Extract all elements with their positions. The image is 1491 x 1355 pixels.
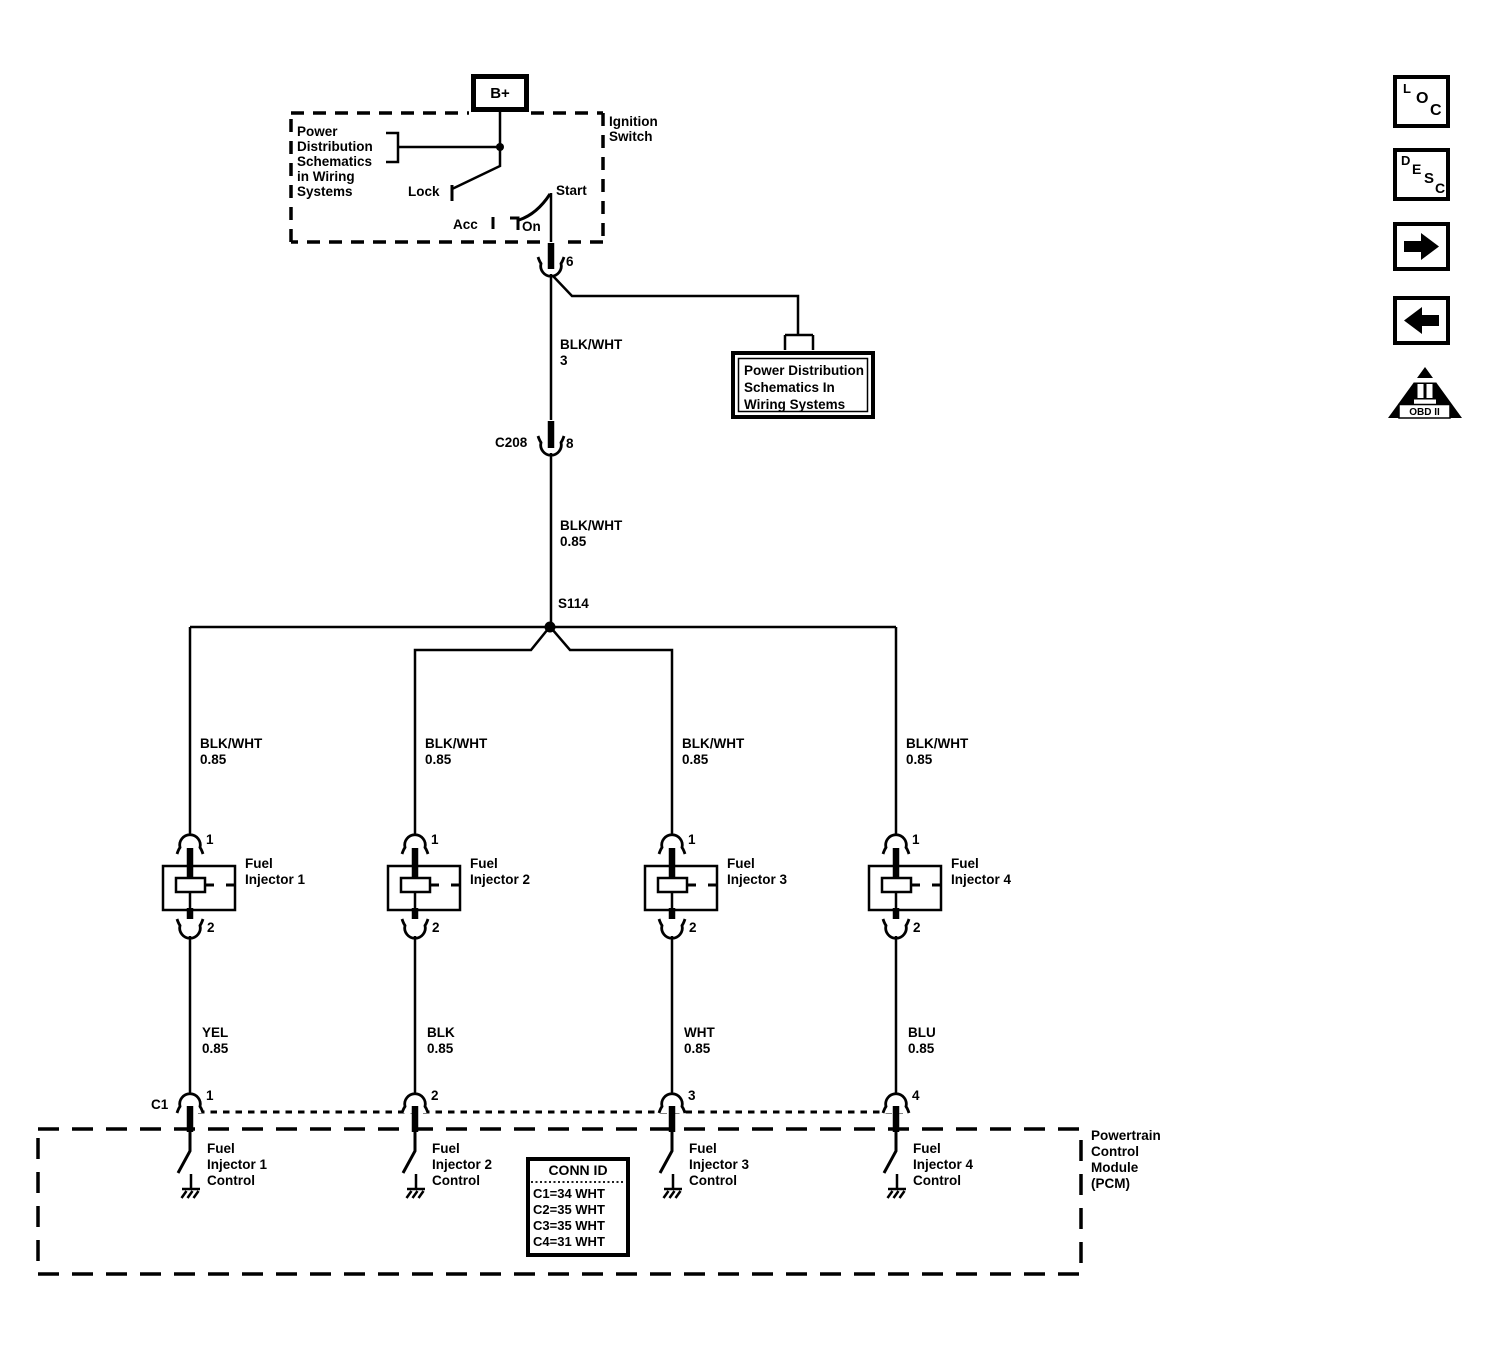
s114-label: S114 [558, 596, 589, 612]
b1-ctl3: Control [207, 1173, 267, 1189]
b2-wire-label: BLK 0.85 [427, 1025, 455, 1057]
conn-row-1: C1=34 WHT [533, 1186, 605, 1202]
battery-feed-box: B+ [471, 74, 529, 112]
b4-feed-color: BLK/WHT [906, 736, 968, 752]
b2-control-label: Fuel Injector 2 Control [432, 1141, 492, 1189]
ignition-pin6-connector [538, 243, 564, 276]
b1-feed-size: 0.85 [200, 752, 262, 768]
right-arrow-icon [1397, 226, 1446, 267]
note-line3: Schematics [297, 154, 373, 169]
note-line5: Systems [297, 184, 373, 199]
ignition-title-line1: Ignition [609, 114, 658, 129]
pcm-line1: Powertrain [1091, 1128, 1161, 1144]
obd2-warning-triangle-icon: OBD II [1383, 363, 1467, 423]
c208-label: C208 [495, 435, 527, 451]
next-page-button[interactable] [1393, 222, 1450, 271]
conn-id-rows: C1=34 WHT C2=35 WHT C3=35 WHT C4=31 WHT [533, 1186, 605, 1250]
b3-ctl1: Fuel [689, 1141, 749, 1157]
desc-letter-e: E [1412, 161, 1421, 177]
b1-pin2: 2 [207, 920, 215, 936]
pcm-title: Powertrain Control Module (PCM) [1091, 1128, 1161, 1192]
note-line2: Distribution [297, 139, 373, 154]
diagram-root: B+ Ignition Switch Power Distribution Sc… [0, 0, 1491, 1355]
b2-pcm-pin: 2 [431, 1088, 439, 1104]
b2-ctl3: Control [432, 1173, 492, 1189]
branch1-feed-label: BLK/WHT 0.85 [200, 736, 262, 768]
note-line4: in Wiring [297, 169, 373, 184]
b3-dev2: Injector 3 [727, 872, 787, 888]
wire2-color: BLK/WHT [560, 518, 622, 534]
b2-pin2: 2 [432, 920, 440, 936]
c208-pin-label: 8 [566, 436, 574, 452]
b4-feed-size: 0.85 [906, 752, 968, 768]
b2-feed-color: BLK/WHT [425, 736, 487, 752]
b2-feed-size: 0.85 [425, 752, 487, 768]
desc-letter-s: S [1424, 170, 1434, 187]
b2-dev1: Fuel [470, 856, 530, 872]
switch-pos-on: On [522, 219, 541, 235]
power-distribution-box-label: Power Distribution Schematics In Wiring … [744, 362, 864, 413]
pd-box-line2: Schematics In [744, 379, 864, 396]
pcm-line3: Module [1091, 1160, 1161, 1176]
obd2-button[interactable]: OBD II [1383, 363, 1467, 428]
s114-splice [190, 622, 896, 837]
b4-ctl1: Fuel [913, 1141, 973, 1157]
b4-ctl2: Injector 4 [913, 1157, 973, 1173]
b4-pcm-pin: 4 [912, 1088, 920, 1104]
b1-feed-color: BLK/WHT [200, 736, 262, 752]
b3-control-label: Fuel Injector 3 Control [689, 1141, 749, 1189]
b3-pin2: 2 [689, 920, 697, 936]
b2-ctl2: Injector 2 [432, 1157, 492, 1173]
b1-dev2: Injector 1 [245, 872, 305, 888]
pd-box-line3: Wiring Systems [744, 396, 864, 413]
wire-label-blkwht-3: BLK/WHT 3 [560, 337, 622, 369]
pin6-label: 6 [566, 254, 574, 270]
b1-wire-size: 0.85 [202, 1041, 228, 1057]
loc-letter-c: C [1430, 102, 1442, 120]
b4-wire-size: 0.85 [908, 1041, 936, 1057]
desc-button[interactable]: D E S C [1393, 148, 1450, 201]
wire2-size: 0.85 [560, 534, 622, 550]
b4-control-label: Fuel Injector 4 Control [913, 1141, 973, 1189]
b4-dev1: Fuel [951, 856, 1011, 872]
pcm-line4: (PCM) [1091, 1176, 1161, 1192]
b1-dev1: Fuel [245, 856, 305, 872]
loc-button[interactable]: L O C [1393, 75, 1450, 128]
b3-ctl3: Control [689, 1173, 749, 1189]
pd-box-line1: Power Distribution [744, 362, 864, 379]
switch-pos-start: Start [556, 183, 587, 199]
wire-label-blkwht-085: BLK/WHT 0.85 [560, 518, 622, 550]
ignition-title-line2: Switch [609, 129, 658, 144]
desc-letter-d: D [1401, 153, 1410, 168]
b1-ctl2: Injector 1 [207, 1157, 267, 1173]
wire1-color: BLK/WHT [560, 337, 622, 353]
power-distribution-note: Power Distribution Schematics in Wiring … [297, 124, 373, 199]
conn-row-4: C4=31 WHT [533, 1234, 605, 1250]
b3-wire-label: WHT 0.85 [684, 1025, 715, 1057]
b4-wire-label: BLU 0.85 [908, 1025, 936, 1057]
switch-pos-acc: Acc [453, 217, 478, 233]
loc-letter-o: O [1416, 90, 1428, 108]
wire1-size: 3 [560, 353, 622, 369]
b1-pin1: 1 [206, 832, 214, 848]
b2-ctl1: Fuel [432, 1141, 492, 1157]
b4-ctl3: Control [913, 1173, 973, 1189]
b3-ctl2: Injector 3 [689, 1157, 749, 1173]
c1-label: C1 [151, 1097, 168, 1113]
obd2-label: OBD II [1409, 407, 1440, 418]
b3-dev1: Fuel [727, 856, 787, 872]
pcm-line2: Control [1091, 1144, 1161, 1160]
left-arrow-icon [1397, 300, 1446, 341]
b4-pin2: 2 [913, 920, 921, 936]
b1-control-label: Fuel Injector 1 Control [207, 1141, 267, 1189]
b1-wire-label: YEL 0.85 [202, 1025, 228, 1057]
branch4-feed-label: BLK/WHT 0.85 [906, 736, 968, 768]
b1-wire-color: YEL [202, 1025, 228, 1041]
note-line1: Power [297, 124, 373, 139]
b2-dev2: Injector 2 [470, 872, 530, 888]
b3-pcm-pin: 3 [688, 1088, 696, 1104]
b1-pcm-pin: 1 [206, 1088, 214, 1104]
switch-pos-lock: Lock [408, 184, 440, 200]
b2-pin1: 1 [431, 832, 439, 848]
conn-row-2: C2=35 WHT [533, 1202, 605, 1218]
b3-feed-color: BLK/WHT [682, 736, 744, 752]
b3-pin1: 1 [688, 832, 696, 848]
branch3-feed-label: BLK/WHT 0.85 [682, 736, 744, 768]
fuel-injector-2-label: Fuel Injector 2 [470, 856, 530, 888]
conn-row-3: C3=35 WHT [533, 1218, 605, 1234]
desc-letter-c: C [1435, 180, 1445, 196]
b4-pin1: 1 [912, 832, 920, 848]
ignition-switch-title: Ignition Switch [609, 114, 658, 144]
b1-ctl1: Fuel [207, 1141, 267, 1157]
b4-wire-color: BLU [908, 1025, 936, 1041]
fuel-injector-1-label: Fuel Injector 1 [245, 856, 305, 888]
branch2-feed-label: BLK/WHT 0.85 [425, 736, 487, 768]
fuel-injector-4-label: Fuel Injector 4 [951, 856, 1011, 888]
b3-feed-size: 0.85 [682, 752, 744, 768]
loc-letter-l: L [1403, 81, 1411, 96]
conn-id-header: CONN ID [529, 1161, 627, 1179]
b3-wire-color: WHT [684, 1025, 715, 1041]
b3-wire-size: 0.85 [684, 1041, 715, 1057]
previous-page-button[interactable] [1393, 296, 1450, 345]
fuel-injector-3-label: Fuel Injector 3 [727, 856, 787, 888]
b2-wire-size: 0.85 [427, 1041, 455, 1057]
b4-dev2: Injector 4 [951, 872, 1011, 888]
b2-wire-color: BLK [427, 1025, 455, 1041]
